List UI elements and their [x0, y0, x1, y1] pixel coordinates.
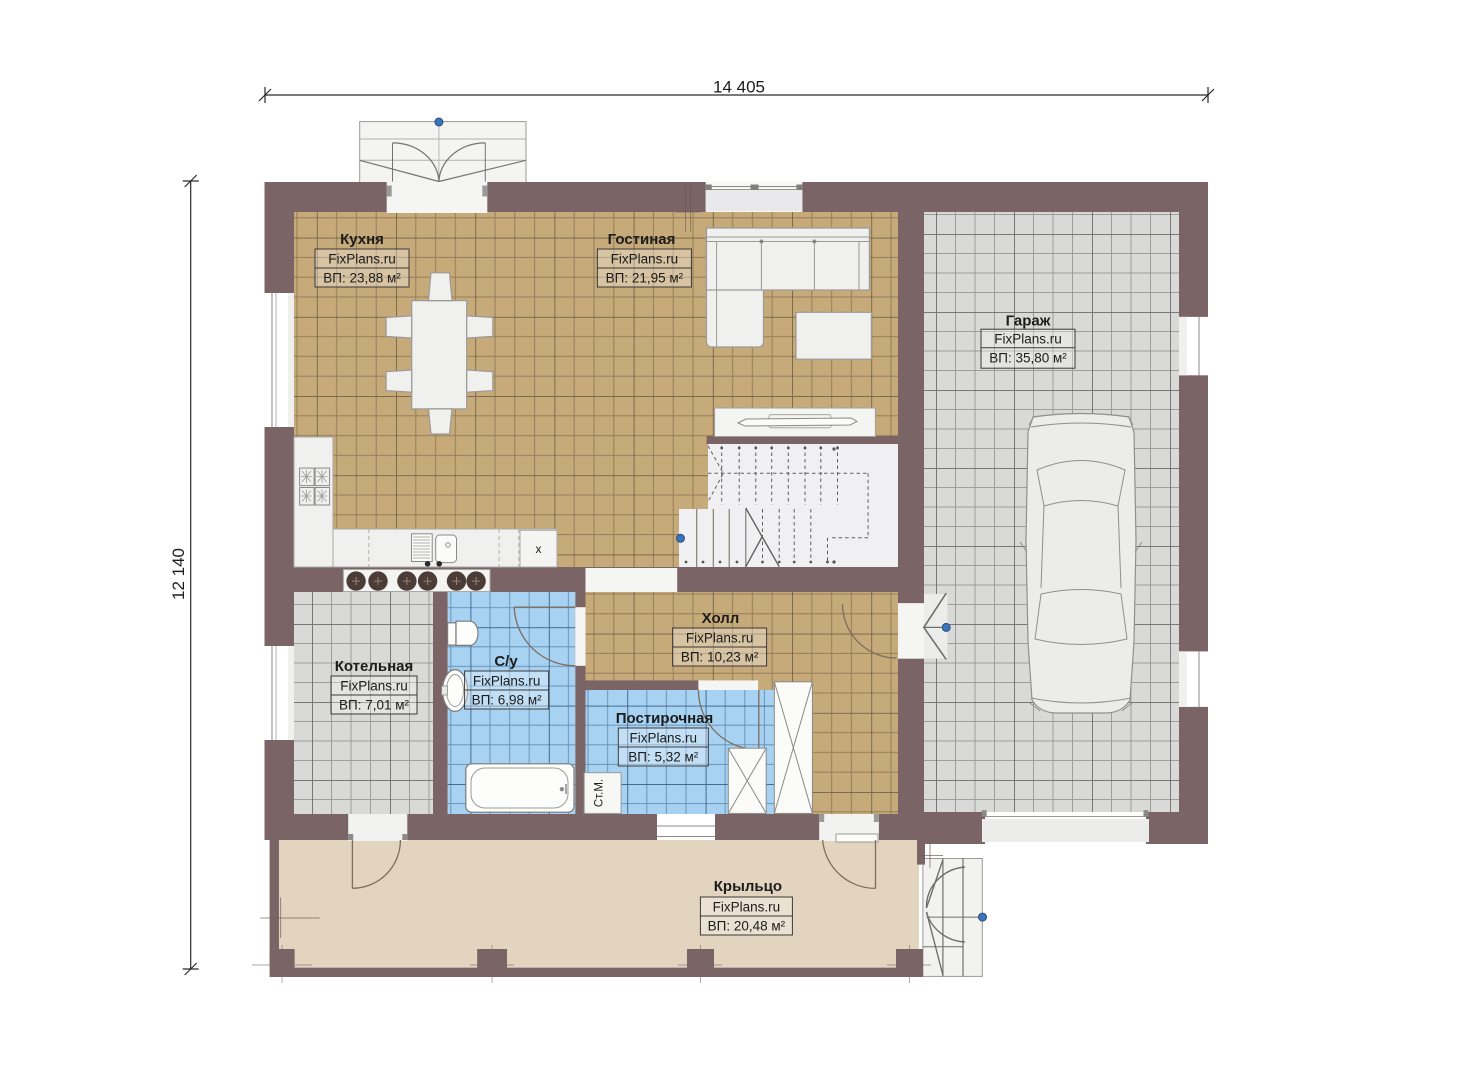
svg-text:ВП: 7,01 м²: ВП: 7,01 м²: [339, 698, 410, 713]
svg-text:ВП: 10,23 м²: ВП: 10,23 м²: [681, 650, 759, 665]
svg-text:ВП: 6,98 м²: ВП: 6,98 м²: [472, 693, 543, 708]
svg-text:Гараж: Гараж: [1006, 313, 1051, 330]
svg-text:Ст.М.: Ст.М.: [594, 779, 606, 807]
svg-text:FixPlans.ru: FixPlans.ru: [473, 674, 541, 689]
svg-text:FixPlans.ru: FixPlans.ru: [611, 252, 679, 267]
svg-text:Гостиная: Гостиная: [608, 231, 676, 248]
svg-text:FixPlans.ru: FixPlans.ru: [630, 731, 698, 746]
svg-text:12 140: 12 140: [169, 548, 188, 600]
svg-text:Кухня: Кухня: [340, 231, 384, 248]
svg-text:ВП: 35,80 м²: ВП: 35,80 м²: [989, 351, 1067, 366]
svg-text:FixPlans.ru: FixPlans.ru: [328, 252, 396, 267]
svg-text:С/у: С/у: [494, 653, 518, 670]
svg-text:FixPlans.ru: FixPlans.ru: [994, 332, 1062, 347]
svg-text:FixPlans.ru: FixPlans.ru: [713, 900, 781, 915]
svg-text:Крыльцо: Крыльцо: [714, 878, 782, 895]
svg-text:FixPlans.ru: FixPlans.ru: [686, 631, 754, 646]
svg-text:x: x: [536, 542, 542, 556]
svg-text:14 405: 14 405: [713, 78, 765, 97]
svg-text:FixPlans.ru: FixPlans.ru: [340, 679, 408, 694]
svg-text:ВП: 23,88 м²: ВП: 23,88 м²: [323, 271, 401, 286]
svg-text:Котельная: Котельная: [335, 658, 414, 675]
svg-text:Холл: Холл: [702, 610, 740, 627]
svg-text:ВП: 21,95 м²: ВП: 21,95 м²: [606, 271, 684, 286]
svg-text:ВП: 5,32 м²: ВП: 5,32 м²: [628, 750, 699, 765]
svg-text:ВП: 20,48 м²: ВП: 20,48 м²: [708, 919, 786, 934]
svg-text:Постирочная: Постирочная: [616, 710, 713, 727]
